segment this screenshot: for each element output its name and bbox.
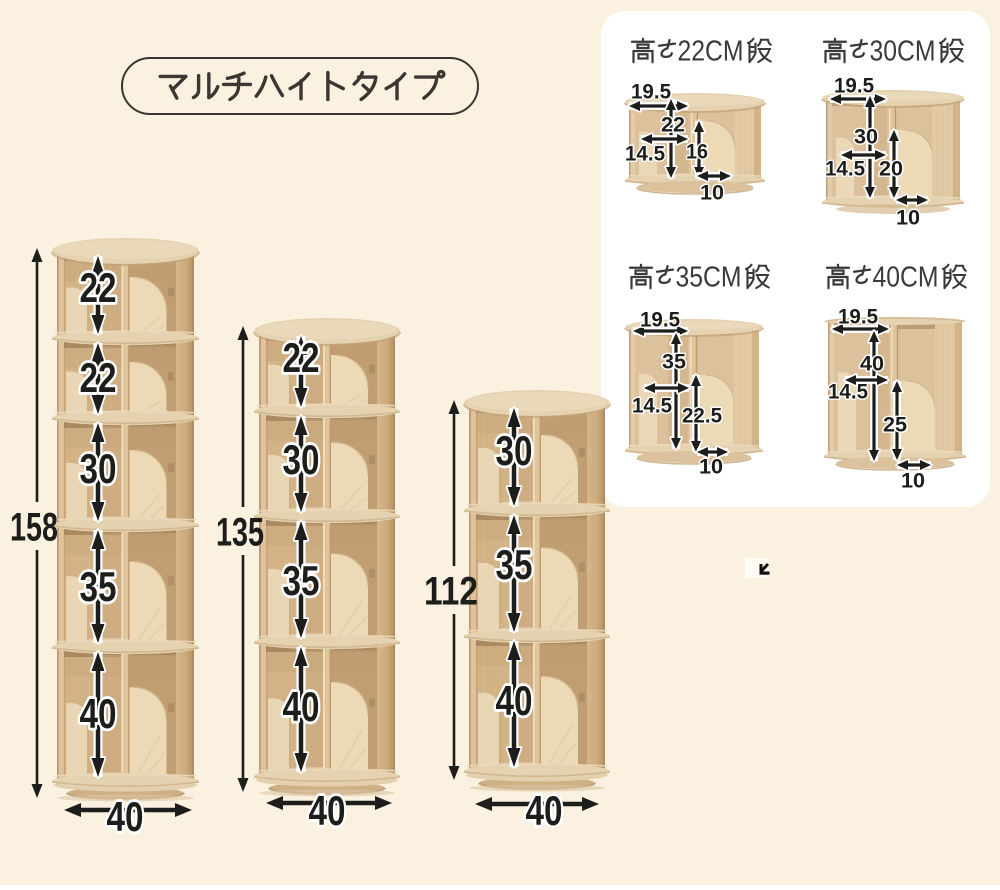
svg-text:14.5: 14.5 bbox=[828, 381, 868, 404]
svg-text:135: 135 bbox=[216, 510, 264, 554]
svg-text:40: 40 bbox=[526, 787, 563, 834]
svg-text:22: 22 bbox=[283, 334, 320, 381]
svg-text:35: 35 bbox=[496, 541, 533, 588]
svg-text:40: 40 bbox=[80, 690, 117, 737]
svg-text:112: 112 bbox=[424, 569, 478, 613]
svg-text:22CM: 22CM bbox=[678, 36, 744, 68]
svg-text:19.5: 19.5 bbox=[640, 309, 680, 332]
svg-text:10: 10 bbox=[700, 182, 724, 205]
svg-text:22: 22 bbox=[80, 264, 117, 311]
svg-text:30: 30 bbox=[283, 436, 320, 483]
svg-text:40: 40 bbox=[107, 793, 144, 840]
svg-text:22: 22 bbox=[661, 114, 685, 137]
svg-text:10: 10 bbox=[901, 470, 925, 493]
svg-text:14.5: 14.5 bbox=[625, 143, 665, 166]
svg-text:25: 25 bbox=[883, 414, 907, 437]
svg-text:40: 40 bbox=[283, 683, 320, 730]
svg-text:35: 35 bbox=[80, 563, 117, 610]
svg-text:30: 30 bbox=[496, 427, 533, 474]
svg-text:35: 35 bbox=[662, 351, 686, 374]
svg-text:40: 40 bbox=[309, 787, 346, 834]
svg-text:30: 30 bbox=[80, 445, 117, 492]
svg-text:30: 30 bbox=[854, 126, 878, 149]
svg-text:40: 40 bbox=[496, 677, 533, 724]
svg-text:14.5: 14.5 bbox=[825, 158, 865, 181]
svg-text:35: 35 bbox=[283, 557, 320, 604]
svg-text:19.5: 19.5 bbox=[838, 306, 878, 329]
svg-text:16: 16 bbox=[686, 141, 708, 164]
svg-text:40: 40 bbox=[860, 353, 884, 376]
svg-text:22: 22 bbox=[80, 354, 117, 401]
svg-text:10: 10 bbox=[896, 207, 920, 230]
svg-text:22.5: 22.5 bbox=[682, 405, 722, 428]
svg-text:19.5: 19.5 bbox=[834, 75, 874, 98]
svg-text:158: 158 bbox=[10, 505, 58, 549]
svg-text:40CM: 40CM bbox=[873, 262, 939, 294]
svg-text:10: 10 bbox=[699, 456, 723, 479]
svg-text:19.5: 19.5 bbox=[631, 81, 671, 104]
svg-text:35CM: 35CM bbox=[676, 262, 742, 294]
svg-text:14.5: 14.5 bbox=[632, 395, 672, 418]
svg-text:30CM: 30CM bbox=[870, 36, 936, 68]
svg-text:20: 20 bbox=[879, 158, 903, 181]
